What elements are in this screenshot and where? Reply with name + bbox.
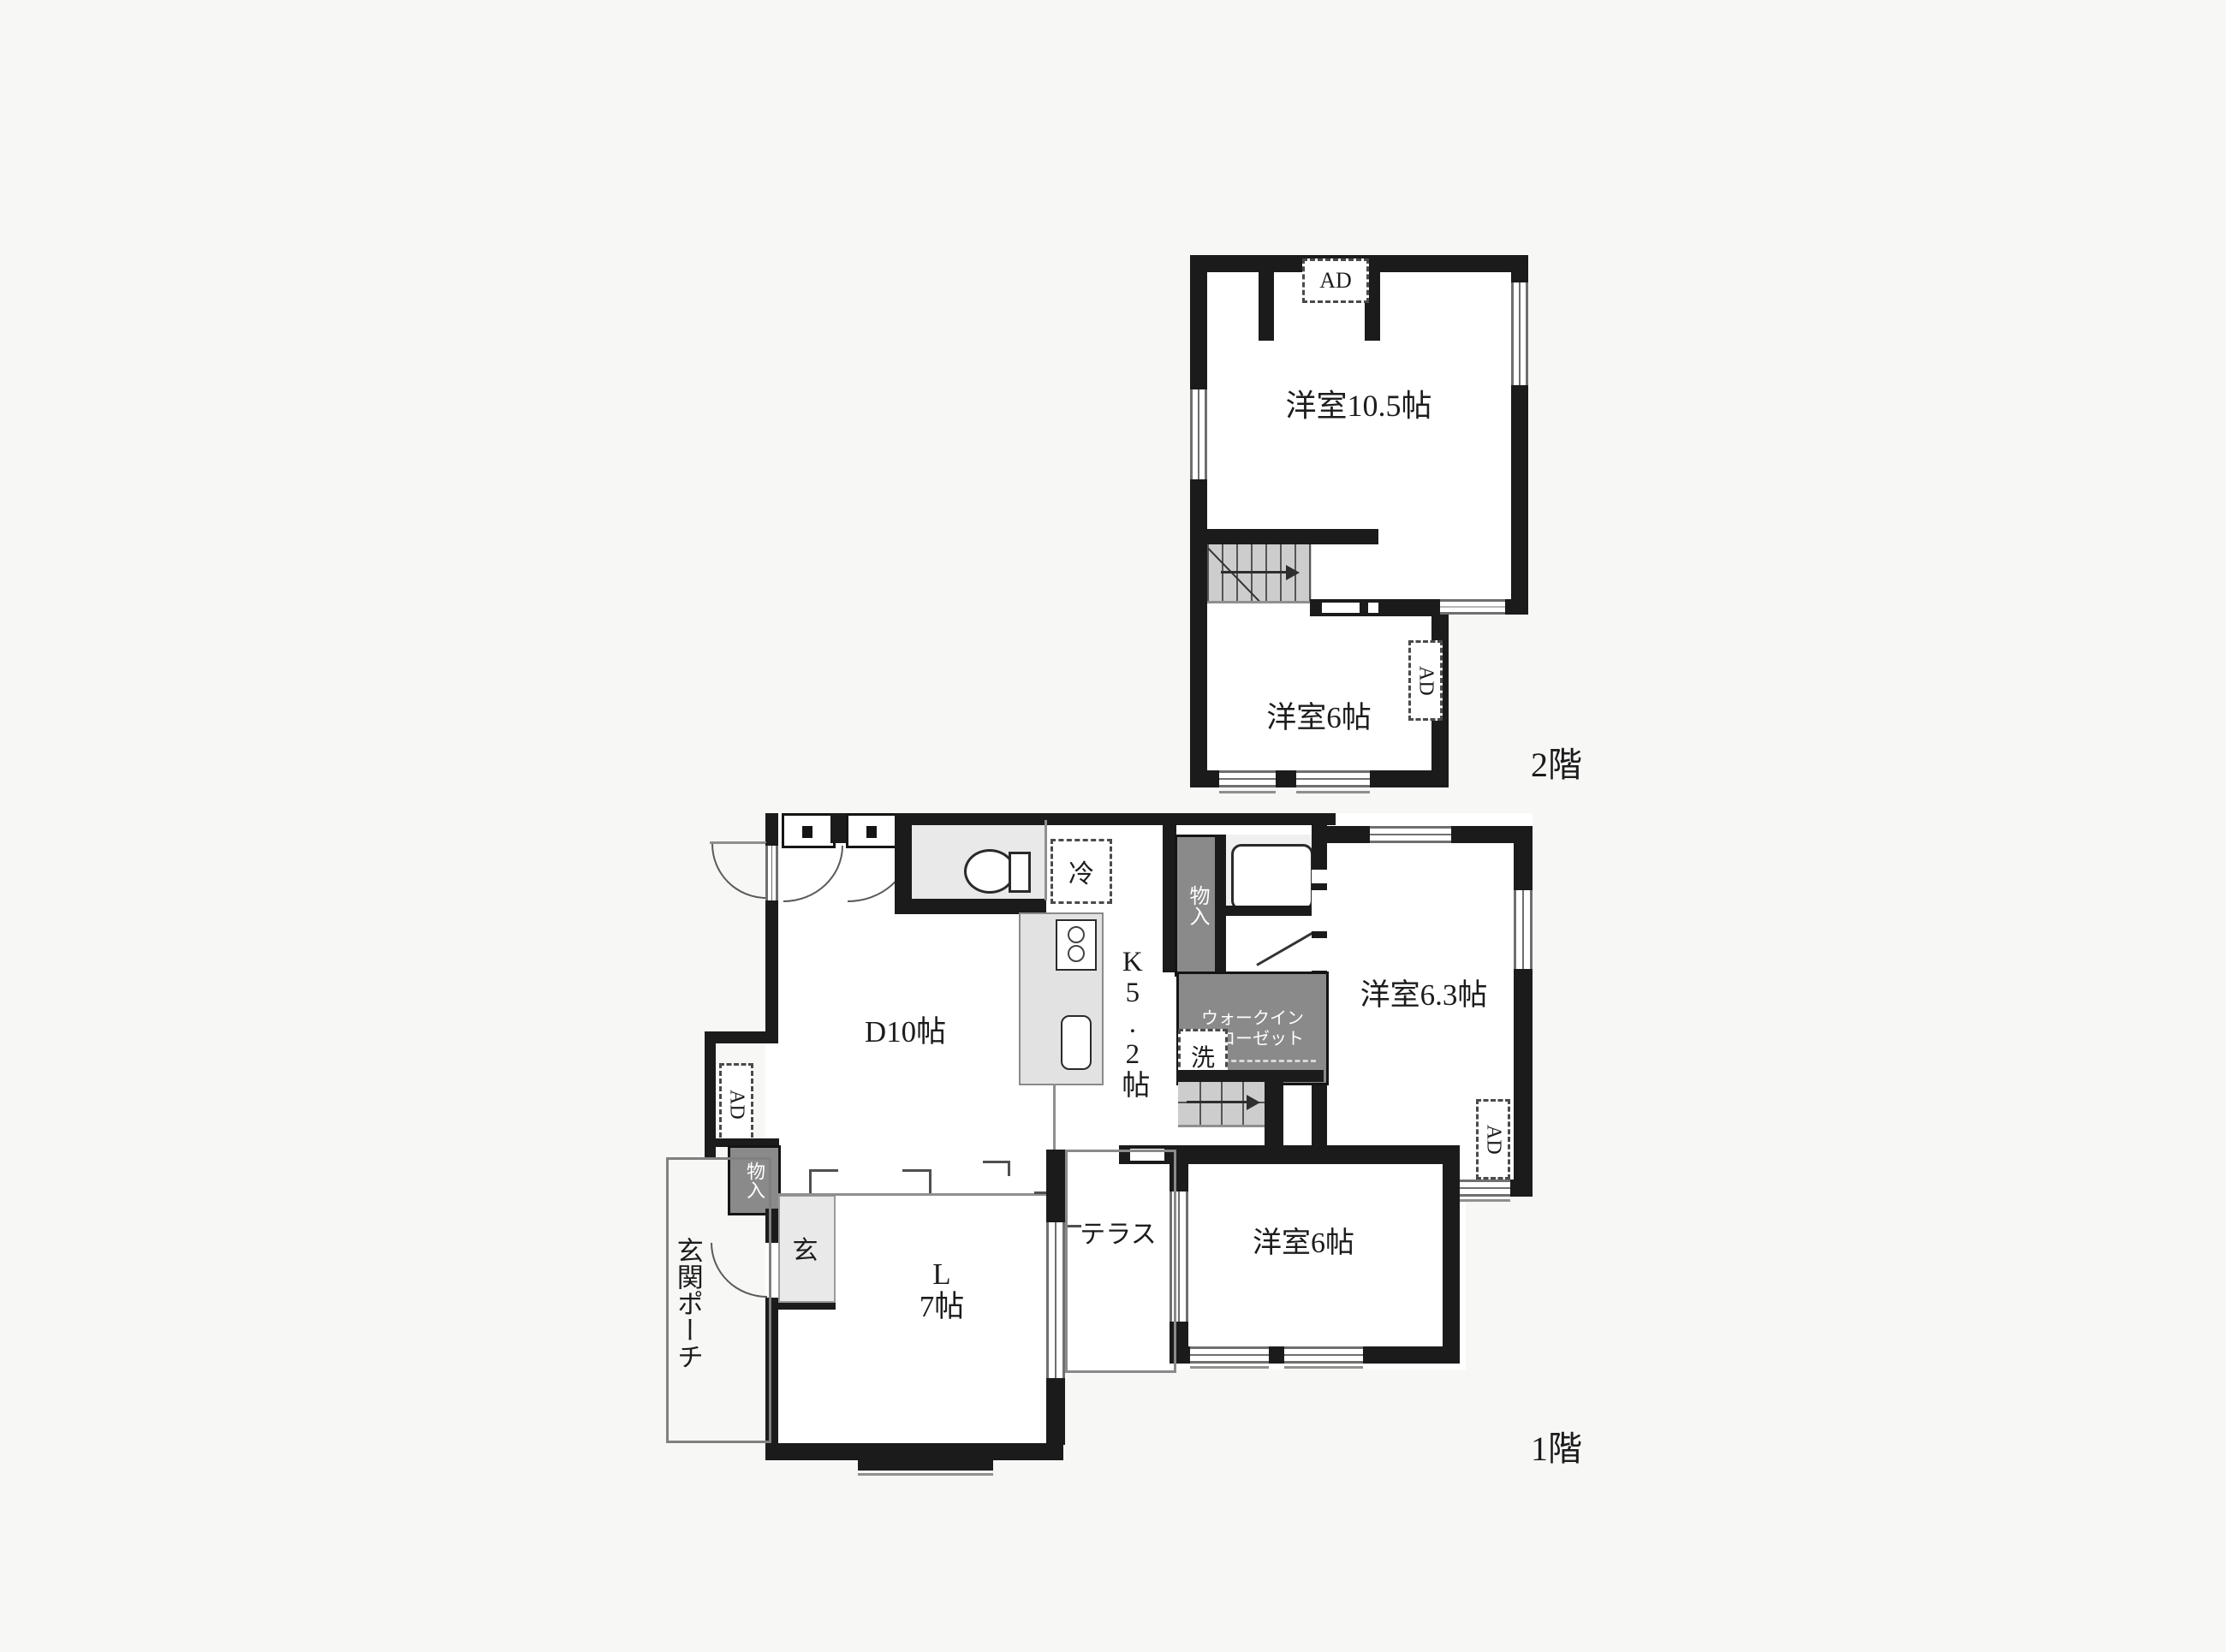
ad-label: AD [1482,1125,1505,1155]
tl-segment [1284,1366,1363,1369]
wall-stub [830,813,846,843]
ad-label: AD [1319,268,1352,294]
window [1440,599,1505,615]
room-label-kitchen: K5.2帖 [1113,907,1151,1137]
window [1284,1346,1363,1364]
french-door-unit [846,813,900,848]
dot-segment [866,826,877,838]
wall [1443,1164,1460,1364]
tl-segment [1190,1366,1269,1369]
mk-segment [902,1169,931,1172]
room-label-western-105: 洋室10.5帖 [1243,387,1474,425]
porch-label: 玄関ポーチ [670,1200,705,1405]
tl-segment [858,1473,993,1476]
sliding-door [1312,931,1327,938]
window [1296,770,1370,787]
wall [1176,1070,1324,1082]
tl-segment [1455,1199,1510,1202]
ad-duct-box: AD [719,1063,753,1145]
sliding-door [1312,883,1327,890]
window [1190,389,1207,479]
ad-duct-box: AD [1302,258,1369,303]
tl-segment [1045,820,1047,900]
mk-segment [1008,1161,1010,1176]
kitchen-text: K5.2帖 [1116,947,1147,1098]
wall [705,1031,778,1043]
sliding-door [1322,603,1360,613]
window-bay [858,1457,993,1471]
living-line1: L [932,1258,950,1291]
toilet-bowl [964,849,1015,894]
wall-stub [765,813,778,843]
tl-segment [778,1193,1063,1196]
wall-stub [1259,272,1274,341]
stair-direction-line [1187,1101,1248,1103]
terrace-outline [1065,1150,1176,1373]
dot-segment [802,826,812,838]
mk-segment [983,1161,1010,1163]
hall-closet: 物入 [1175,835,1220,977]
stove [1056,919,1097,971]
window [765,846,778,900]
window [1219,770,1276,787]
room-label-western-6-1f: 洋室6帖 [1229,1226,1378,1262]
wall [912,813,1336,825]
room-label-dining: D10帖 [843,1013,967,1051]
stair-direction-line [1221,571,1288,573]
mk-segment [809,1169,838,1172]
stair-arrow-icon [1286,565,1300,580]
door-swing [711,844,766,899]
wall [705,1043,716,1160]
refrigerator-box: 冷 [1051,839,1112,904]
mk-segment [929,1169,931,1193]
floor-plan-image: AD AD 洋室10.5帖 洋室6帖 2階 [0,0,2226,1652]
wall [1190,529,1378,544]
room-label-western-6-2f: 洋室6帖 [1227,700,1411,736]
wall [895,813,912,909]
window [1455,1180,1510,1197]
kitchen-sink [1061,1015,1092,1070]
porch-text: 玄関ポーチ [673,1237,701,1370]
wall [1312,825,1327,870]
wall [1215,835,1226,972]
sline-segment [1199,1082,1201,1125]
refrigerator-label: 冷 [1068,853,1094,890]
tl-segment [1178,1125,1265,1127]
segment-segment [1068,926,1085,943]
floor-1-caption: 1階 [1517,1428,1596,1471]
window [1370,826,1451,843]
ad-label: AD [725,1090,748,1120]
wall [1226,906,1312,916]
ad-label: AD [1414,666,1437,696]
window [1046,1222,1065,1378]
closet-label: 物入 [1182,885,1212,926]
washer-label: 洗 [1191,1039,1215,1073]
mk-segment [809,1169,812,1193]
tl-segment [1219,791,1276,793]
wic-line1: ウォークイン [1201,1008,1304,1029]
segment-segment [1068,945,1085,962]
ad-duct-box: AD [1476,1099,1510,1180]
tl-segment [1207,601,1312,603]
room-label-living: L 7帖 [890,1250,993,1332]
stair-arrow-icon [1247,1095,1260,1110]
window [1511,282,1528,385]
entrance-label: 玄 [778,1233,832,1270]
sline-segment [1221,1082,1223,1125]
room-label-western-63: 洋室6.3帖 [1325,976,1522,1015]
living-line2: 7帖 [920,1291,965,1323]
terrace-label: テラス [1068,1219,1168,1251]
window [1514,890,1533,969]
bathtub [1231,844,1313,911]
wall [1265,1070,1283,1154]
ad-duct-box: AD [1408,640,1443,721]
toilet-tank [1009,852,1031,893]
floor-2-caption: 2階 [1517,745,1596,786]
window [1190,1346,1269,1364]
tl-segment [1296,791,1370,793]
french-door-unit [782,813,836,848]
sline-segment [1242,1082,1244,1125]
